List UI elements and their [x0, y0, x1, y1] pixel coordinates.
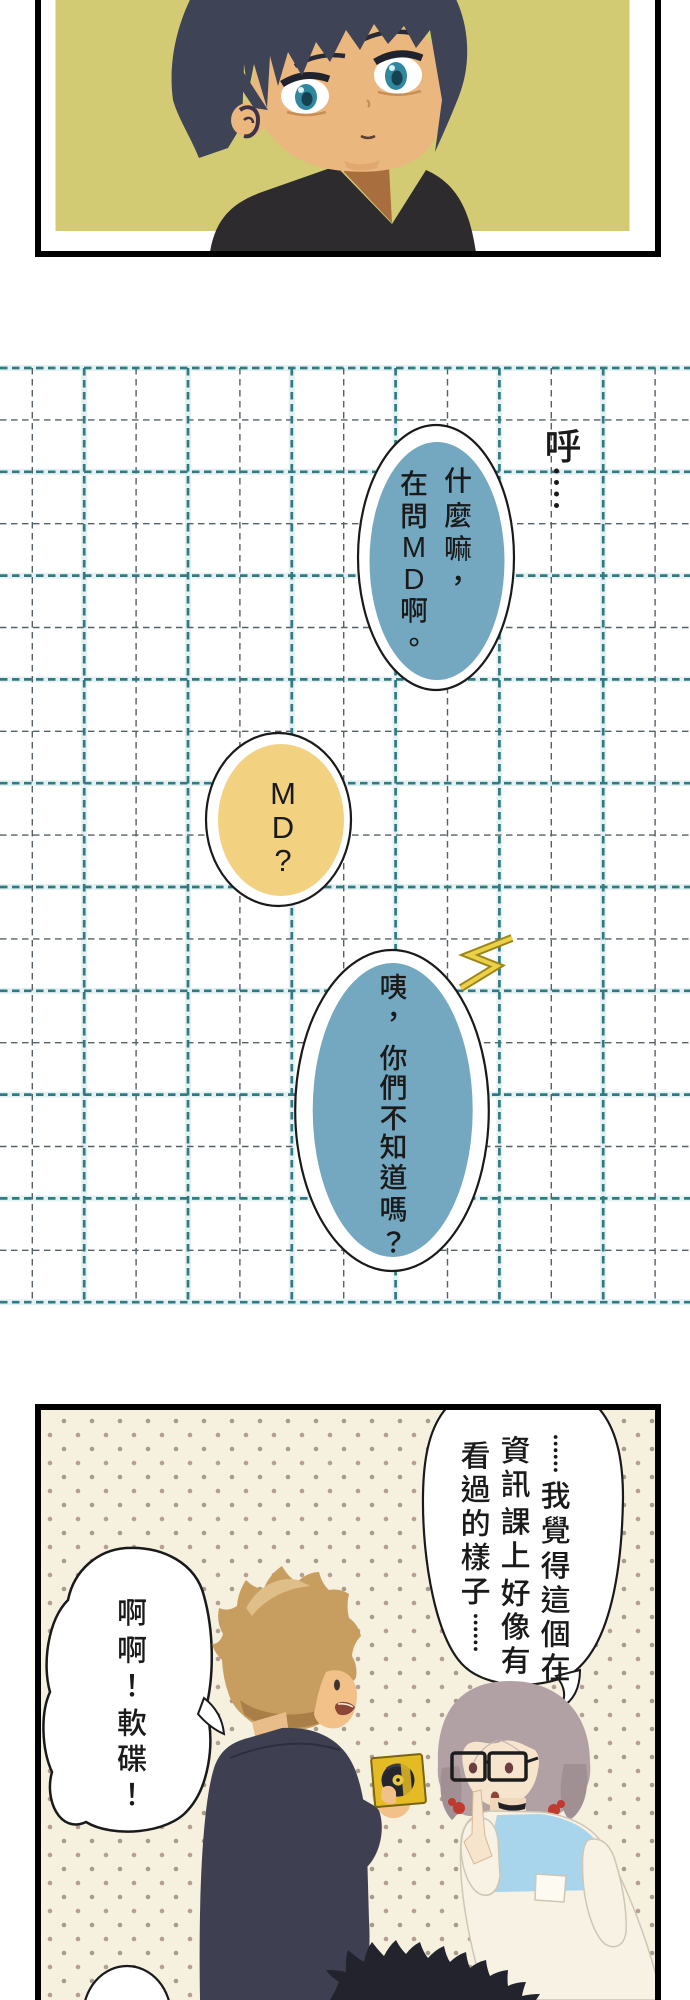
svg-text:M: M — [402, 532, 426, 564]
svg-text:D: D — [272, 810, 294, 845]
svg-text:?: ? — [274, 843, 291, 878]
svg-text:M: M — [270, 776, 296, 811]
svg-text:D: D — [404, 564, 425, 596]
